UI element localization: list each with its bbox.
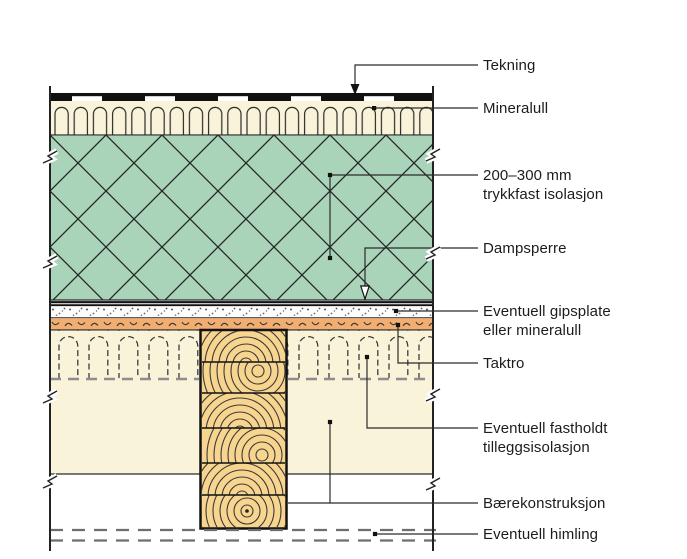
gipsplate-layer <box>50 307 433 318</box>
trykkfast-isolasjon-layer <box>50 136 433 301</box>
tekning-layer <box>50 93 433 101</box>
dampsperre-layer <box>50 302 433 305</box>
label-tilleggsisolasjon: Eventuell fastholdt tilleggsisolasjon <box>483 419 607 457</box>
label-himling: Eventuell himling <box>483 525 598 544</box>
himling-dashed-lines <box>50 530 436 541</box>
taktro-layer <box>50 318 433 330</box>
label-mineralull: Mineralull <box>483 99 548 118</box>
construction-detail-diagram: Tekning Mineralull 200–300 mm trykkfast … <box>0 0 687 559</box>
label-tekning: Tekning <box>483 56 535 75</box>
diagram-canvas <box>0 0 687 559</box>
label-gipsplate: Eventuell gipsplate eller mineralull <box>483 302 611 340</box>
leader-tekning <box>355 65 478 84</box>
label-taktro: Taktro <box>483 354 524 373</box>
label-dampsperre: Dampsperre <box>483 239 567 258</box>
label-trykkfast-isolasjon: 200–300 mm trykkfast isolasjon <box>483 166 603 204</box>
label-baerekonstruksjon: Bærekonstruksjon <box>483 494 606 513</box>
